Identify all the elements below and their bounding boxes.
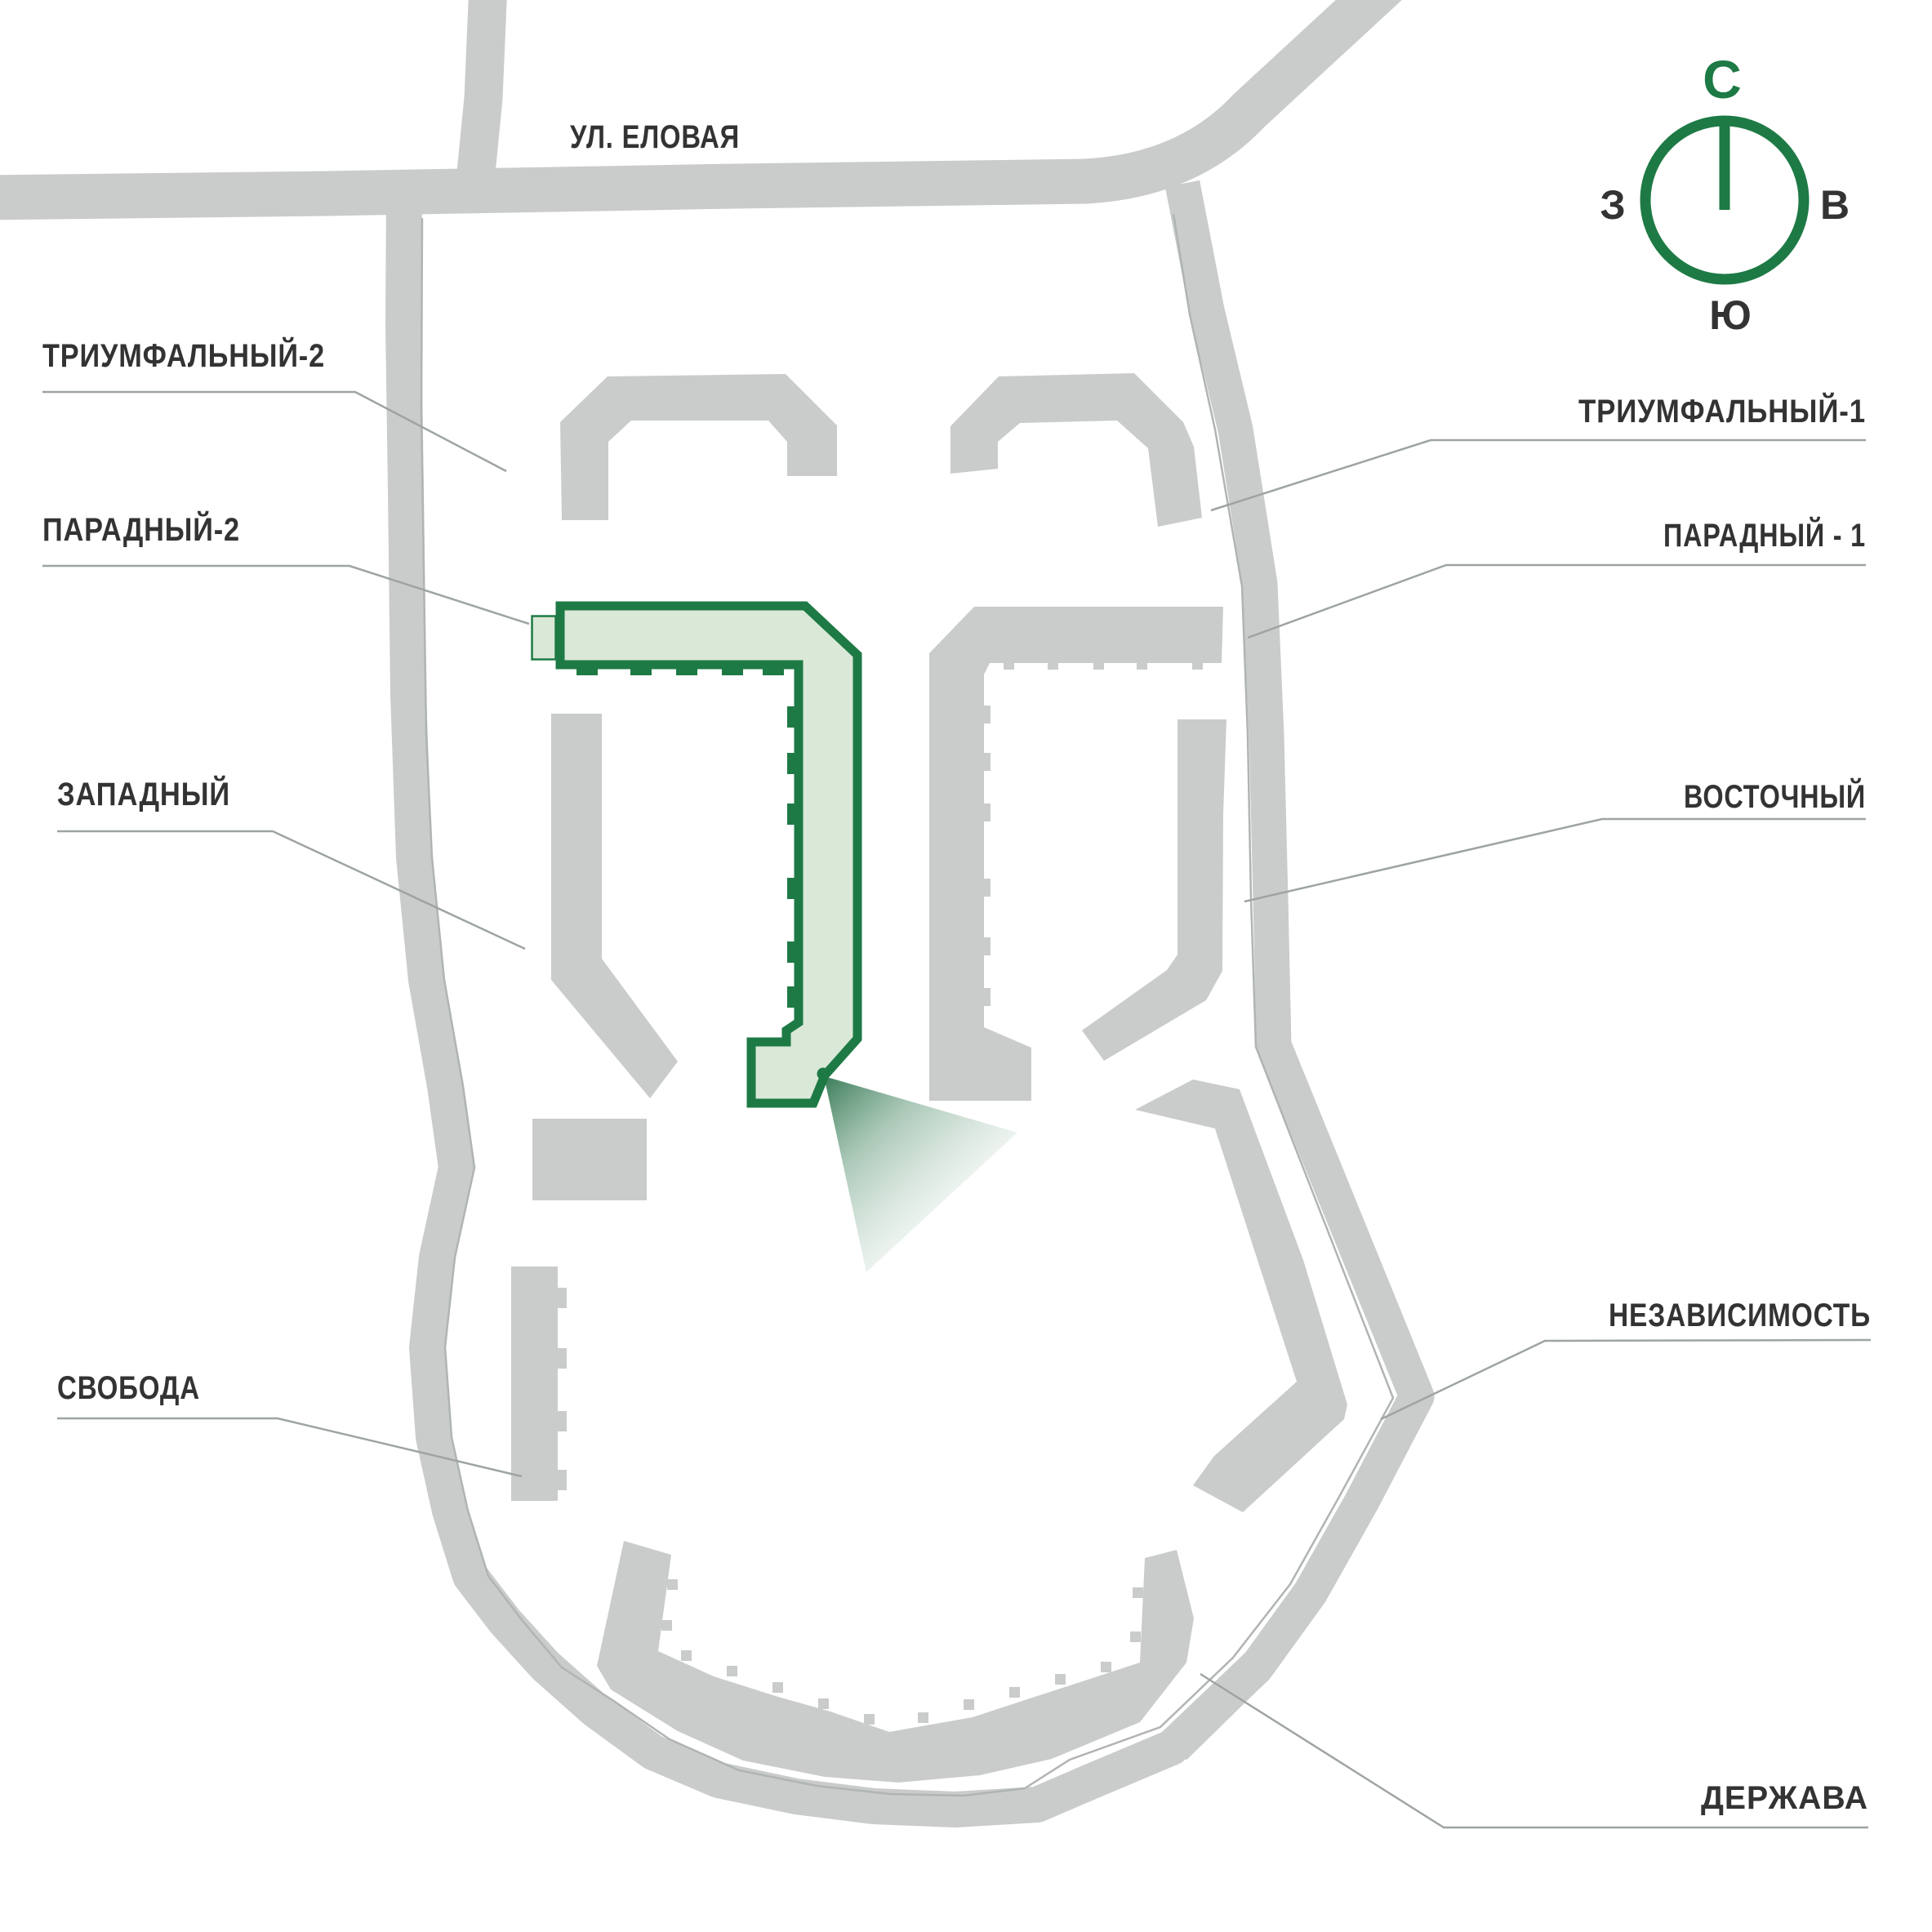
svg-text:ПАРАДНЫЙ-2: ПАРАДНЫЙ-2 bbox=[42, 510, 240, 548]
svg-text:ТРИУМФАЛЬНЫЙ-2: ТРИУМФАЛЬНЫЙ-2 bbox=[42, 336, 325, 374]
svg-text:ВОСТОЧНЫЙ: ВОСТОЧНЫЙ bbox=[1684, 777, 1866, 815]
svg-text:ПАРАДНЫЙ - 1: ПАРАДНЫЙ - 1 bbox=[1663, 516, 1866, 554]
svg-text:ДЕРЖАВА: ДЕРЖАВА bbox=[1701, 1780, 1868, 1816]
svg-text:ЗАПАДНЫЙ: ЗАПАДНЫЙ bbox=[57, 775, 230, 812]
svg-text:НЕЗАВИСИМОСТЬ: НЕЗАВИСИМОСТЬ bbox=[1609, 1298, 1871, 1333]
svg-text:СВОБОДА: СВОБОДА bbox=[57, 1370, 200, 1406]
svg-text:Ю: Ю bbox=[1709, 292, 1752, 338]
svg-text:УЛ. ЕЛОВАЯ: УЛ. ЕЛОВАЯ bbox=[570, 119, 740, 155]
svg-text:С: С bbox=[1703, 49, 1742, 109]
svg-text:ТРИУМФАЛЬНЫЙ-1: ТРИУМФАЛЬНЫЙ-1 bbox=[1578, 392, 1866, 430]
svg-text:З: З bbox=[1600, 182, 1625, 228]
svg-text:В: В bbox=[1820, 182, 1850, 228]
